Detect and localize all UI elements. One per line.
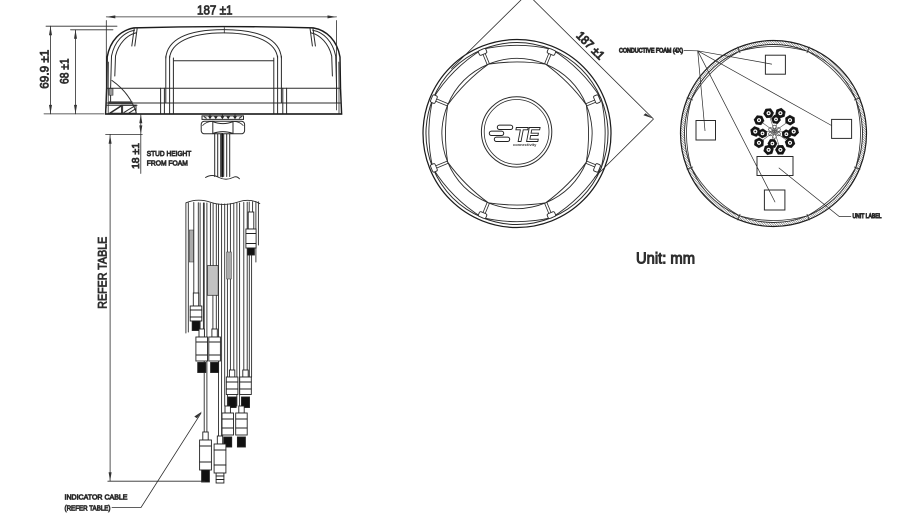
svg-text:STUD HEIGHT: STUD HEIGHT bbox=[147, 149, 192, 158]
svg-text:UNIT LABEL: UNIT LABEL bbox=[853, 213, 883, 220]
svg-text:CONDUCTIVE FOAM (4X): CONDUCTIVE FOAM (4X) bbox=[619, 49, 683, 55]
svg-text:(REFER TABLE): (REFER TABLE) bbox=[65, 503, 111, 512]
svg-text:REFER TABLE: REFER TABLE bbox=[96, 237, 110, 309]
svg-text:Unit: mm: Unit: mm bbox=[636, 251, 695, 268]
svg-text:18 ±1: 18 ±1 bbox=[130, 143, 142, 169]
svg-text:FROM FOAM: FROM FOAM bbox=[147, 158, 188, 167]
svg-text:187 ±1: 187 ±1 bbox=[197, 3, 233, 17]
svg-text:69.9 ±1: 69.9 ±1 bbox=[37, 49, 51, 88]
svg-text:68 ±1: 68 ±1 bbox=[58, 58, 72, 84]
svg-text:connectivity: connectivity bbox=[513, 142, 537, 147]
svg-text:INDICATOR CABLE: INDICATOR CABLE bbox=[65, 493, 128, 502]
svg-text:187 ±1: 187 ±1 bbox=[573, 29, 607, 63]
